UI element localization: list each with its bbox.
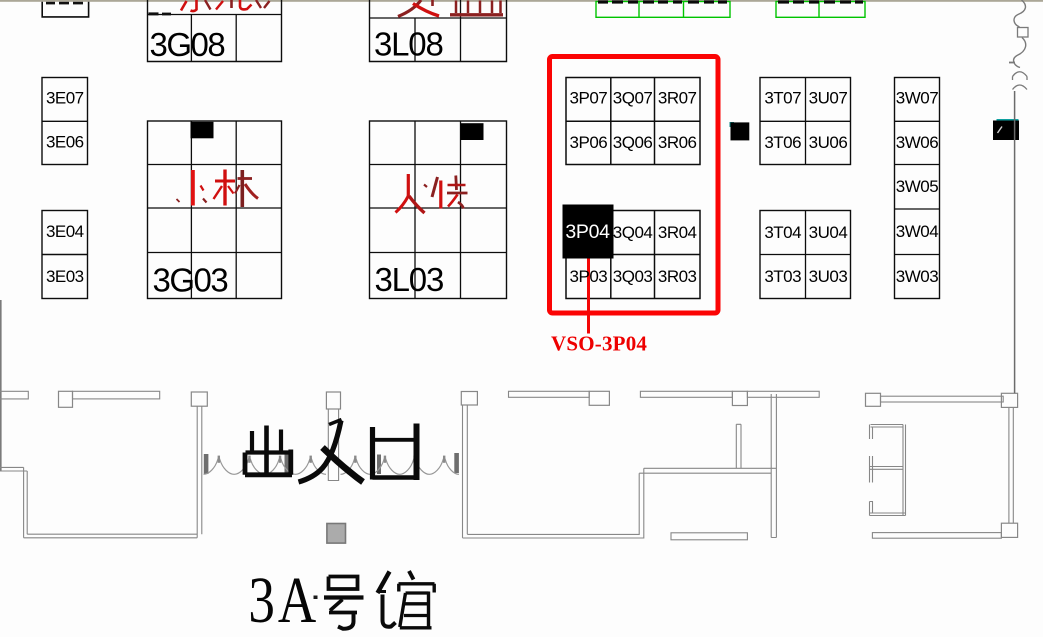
svg-text:3U03: 3U03 xyxy=(809,267,848,286)
svg-text:3Q04: 3Q04 xyxy=(613,223,653,242)
svg-text:3Q03: 3Q03 xyxy=(613,267,653,286)
svg-text:3R04: 3R04 xyxy=(658,223,697,242)
svg-text:3Q07: 3Q07 xyxy=(613,89,653,108)
svg-text:3P07: 3P07 xyxy=(570,89,608,108)
svg-text:3T04: 3T04 xyxy=(764,223,801,242)
svg-text:3P06: 3P06 xyxy=(570,133,608,152)
svg-text:3E03: 3E03 xyxy=(46,267,84,286)
svg-text:3P04: 3P04 xyxy=(565,221,610,243)
svg-text:3G03: 3G03 xyxy=(153,262,228,299)
svg-text:3E04: 3E04 xyxy=(46,222,84,241)
svg-text:3T06: 3T06 xyxy=(764,133,801,152)
svg-text:3U04: 3U04 xyxy=(809,223,848,242)
svg-text:3R07: 3R07 xyxy=(658,89,697,108)
svg-text:3W03: 3W03 xyxy=(896,267,938,286)
svg-text:3T07: 3T07 xyxy=(764,89,801,108)
svg-text:3T03: 3T03 xyxy=(764,267,801,286)
svg-text:3E06: 3E06 xyxy=(46,132,84,151)
svg-text:3A: 3A xyxy=(248,564,319,636)
svg-text:3P03: 3P03 xyxy=(570,267,608,286)
svg-text:3U07: 3U07 xyxy=(809,89,848,108)
svg-text:3G08: 3G08 xyxy=(150,26,225,63)
svg-text:3R03: 3R03 xyxy=(658,267,697,286)
svg-text:3W04: 3W04 xyxy=(896,222,938,241)
svg-text:3R06: 3R06 xyxy=(658,133,697,152)
svg-text:3U06: 3U06 xyxy=(809,133,848,152)
svg-text:3Q06: 3Q06 xyxy=(613,133,653,152)
svg-text:3W07: 3W07 xyxy=(896,89,938,108)
svg-text:3W05: 3W05 xyxy=(896,177,938,196)
svg-text:3W06: 3W06 xyxy=(896,133,938,152)
svg-text:3E07: 3E07 xyxy=(46,89,84,108)
svg-text:VSO-3P04: VSO-3P04 xyxy=(551,332,647,356)
svg-text:3L03: 3L03 xyxy=(375,261,444,298)
svg-text:3L08: 3L08 xyxy=(374,26,443,63)
